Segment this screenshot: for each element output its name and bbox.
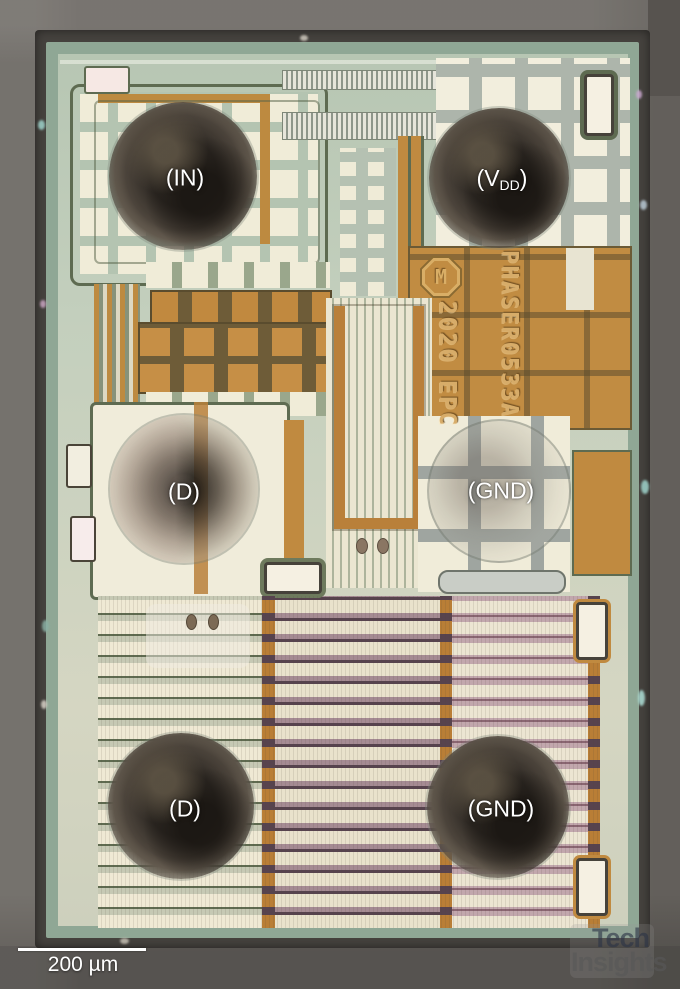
label-drain-bottom: (D) — [169, 796, 201, 823]
copper-strip — [284, 420, 304, 574]
edge-speckle — [641, 480, 649, 494]
edge-pad — [66, 444, 92, 488]
label-gnd-bottom: (GND) — [468, 796, 534, 823]
edge-pad — [576, 858, 608, 916]
power-array-center-caps — [262, 596, 275, 928]
array-light-patch — [146, 604, 250, 668]
small-pad-column — [340, 148, 396, 296]
edge-speckle — [40, 300, 46, 308]
edge-pad — [70, 516, 96, 562]
label-in: (IN) — [166, 165, 204, 192]
edge-speckle — [640, 200, 647, 210]
edge-speckle — [41, 700, 47, 709]
edge-speckle — [42, 620, 49, 632]
via-dot — [356, 538, 368, 554]
label-drain-mid: (D) — [168, 479, 200, 506]
logo-face: M — [425, 261, 457, 293]
edge-speckle — [638, 690, 645, 706]
marking-block-notch — [566, 248, 594, 310]
edge-speckle — [38, 120, 45, 130]
logo-ring: M — [422, 258, 460, 296]
via-dot — [377, 538, 389, 554]
fine-column-block — [94, 284, 140, 416]
copper-cell-array — [138, 322, 332, 394]
die-marking-date-code: 2020 EPC — [434, 301, 460, 428]
scale-bar-label: 200 µm — [28, 953, 138, 977]
edge-speckle — [636, 90, 642, 99]
label-vdd-sub: DD — [500, 177, 520, 193]
copper-u-trace — [334, 306, 424, 529]
die-photo: M 2020 EPC PHASER0533A (IN) ( — [0, 0, 680, 989]
mid-pill-pad — [264, 562, 322, 594]
background-patch-top-right — [648, 0, 680, 96]
edge-pad — [84, 66, 130, 94]
edge-speckle — [120, 938, 129, 944]
logo-letter: M — [425, 261, 457, 293]
edge-pad — [576, 602, 608, 660]
label-vdd: (VDD) — [477, 165, 528, 193]
label-gnd-mid: (GND) — [468, 478, 534, 505]
pad-row — [146, 262, 330, 288]
edge-speckle — [300, 35, 308, 41]
watermark-line2: Insights — [571, 949, 667, 976]
via-dot — [186, 614, 197, 630]
copper-patch — [572, 450, 632, 576]
scale-bar-line — [18, 948, 146, 951]
label-vdd-post: ) — [520, 165, 528, 191]
label-vdd-pre: (V — [477, 165, 500, 191]
gray-bar — [438, 570, 566, 594]
power-array-center — [262, 596, 440, 928]
edge-pad — [584, 74, 614, 136]
via-dot — [208, 614, 219, 630]
copper-cell-row — [150, 290, 332, 324]
die-marking-part-number: PHASER0533A — [497, 250, 522, 418]
